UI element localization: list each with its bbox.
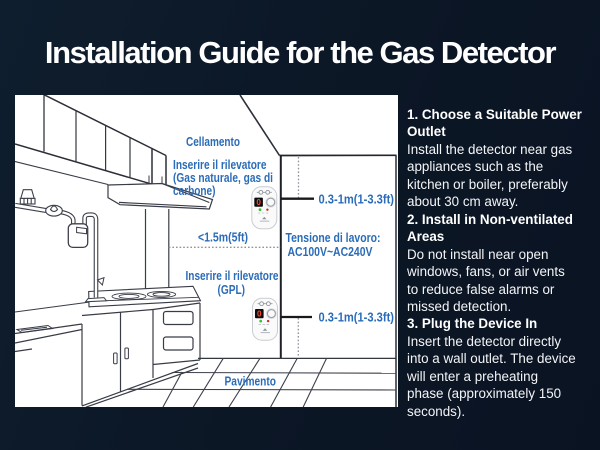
svg-text:(Gas naturale, gas di: (Gas naturale, gas di bbox=[173, 171, 273, 185]
svg-text:Tensione di lavoro:: Tensione di lavoro: bbox=[286, 231, 381, 245]
svg-text:Pavimento: Pavimento bbox=[225, 375, 277, 389]
svg-text:0: 0 bbox=[256, 198, 261, 207]
svg-text:0.3-1m(1-3.3ft): 0.3-1m(1-3.3ft) bbox=[319, 191, 395, 206]
svg-text:<1.5m(5ft): <1.5m(5ft) bbox=[198, 231, 248, 245]
svg-text:(GPL): (GPL) bbox=[218, 283, 246, 297]
svg-text:Cellamento: Cellamento bbox=[186, 135, 240, 149]
svg-text:AC100V~AC240V: AC100V~AC240V bbox=[288, 245, 373, 259]
svg-text:Inserire il rilevatore: Inserire il rilevatore bbox=[186, 269, 279, 283]
svg-text:carbone): carbone) bbox=[173, 184, 216, 198]
svg-text:0.3-1m(1-3.3ft): 0.3-1m(1-3.3ft) bbox=[319, 310, 395, 325]
svg-text:Inserire il rilevatore: Inserire il rilevatore bbox=[173, 158, 267, 172]
